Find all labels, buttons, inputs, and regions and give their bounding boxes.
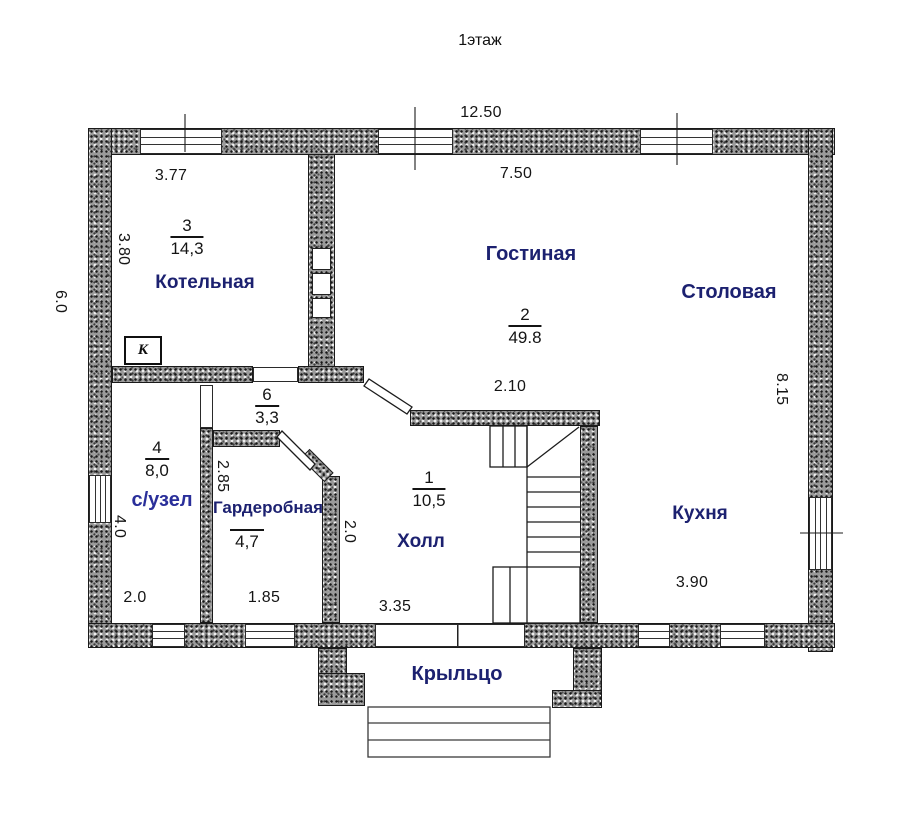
room-area: 8,0	[145, 461, 169, 480]
window-dining-top	[640, 129, 713, 154]
window-bathroom-left	[89, 475, 111, 523]
dim-right-side: 8.15	[772, 373, 790, 405]
door-boiler	[253, 367, 298, 382]
dim-wardrobe-width: 1.85	[248, 589, 280, 607]
room-area-corridor: 6 3,3	[255, 385, 279, 427]
dim-bathroom-depth: 4.0	[110, 515, 128, 538]
wall-wardrobe-diagonal	[300, 449, 333, 482]
linework-layer	[0, 0, 900, 816]
wall-wardrobe-hall	[322, 476, 340, 623]
room-number: 1	[412, 468, 445, 487]
room-label-dining: Столовая	[681, 281, 776, 304]
flue-block-2	[312, 273, 331, 295]
room-area: 4,7	[230, 532, 264, 551]
room-area-wardrobe: 4,7	[230, 528, 264, 551]
fraction-bar	[412, 488, 445, 490]
room-label-porch: Крыльцо	[411, 663, 502, 686]
dim-boiler-width: 3.77	[155, 167, 187, 185]
dim-wardrobe-depth: 2.85	[213, 460, 231, 492]
fraction-bar	[145, 458, 169, 460]
wall-boiler-bottom	[112, 366, 253, 383]
floor-plan: 1этаж 12.50 3.77 7.50 3.80 6.0 8.15 2.10…	[0, 0, 900, 816]
dim-living-width: 7.50	[500, 165, 532, 183]
room-label-boiler: Котельная	[155, 272, 254, 294]
boiler-unit-mark: К	[124, 336, 162, 365]
flue-block-3	[312, 298, 331, 318]
dim-top-total: 12.50	[460, 104, 502, 122]
wall-porch-left-lower	[318, 673, 365, 706]
room-area-living: 2 49.8	[508, 305, 541, 347]
wall-boiler-stub	[298, 366, 364, 383]
flue-block-1	[312, 248, 331, 270]
boiler-unit-letter: К	[138, 342, 148, 359]
room-area: 3,3	[255, 408, 279, 427]
dim-boiler-depth: 3.80	[114, 233, 132, 265]
window-bottom-2	[245, 624, 295, 647]
window-bottom-1	[152, 624, 185, 647]
room-label-bathroom: с/узел	[131, 489, 192, 512]
room-label-wardrobe: Гардеробная	[213, 498, 323, 518]
window-living-top	[378, 129, 453, 154]
room-number: 2	[508, 305, 541, 324]
dim-bathroom-width: 2.0	[123, 589, 146, 607]
fraction-bar	[170, 236, 203, 238]
room-area: 10,5	[412, 491, 445, 510]
door-entrance	[375, 624, 525, 647]
room-area: 49.8	[508, 328, 541, 347]
room-area: 14,3	[170, 239, 203, 258]
door-bathroom	[200, 385, 213, 428]
window-boiler-top	[140, 129, 222, 154]
wall-outer-left	[88, 128, 112, 648]
floor-title: 1этаж	[458, 32, 501, 50]
room-area-bathroom: 4 8,0	[145, 438, 169, 480]
room-number: 3	[170, 216, 203, 235]
room-label-living: Гостиная	[486, 243, 576, 266]
fraction-bar	[255, 405, 279, 407]
fraction-bar	[230, 529, 264, 531]
room-label-kitchen: Кухня	[672, 503, 728, 525]
dim-kitchen-width: 3.90	[676, 574, 708, 592]
room-label-hall: Холл	[397, 531, 445, 553]
wall-porch-left-upper	[318, 648, 347, 674]
door-leaf-living	[364, 379, 412, 414]
stair-landing	[493, 567, 580, 623]
window-bottom-3	[638, 624, 670, 647]
dim-left-side: 6.0	[51, 290, 69, 313]
window-bottom-4	[720, 624, 765, 647]
wall-porch-right-upper	[573, 648, 602, 691]
room-number: 4	[145, 438, 169, 457]
fraction-bar	[508, 325, 541, 327]
window-kitchen-right	[809, 497, 832, 570]
wall-porch-right-lower	[552, 690, 602, 708]
wall-wardrobe-top	[213, 430, 280, 447]
porch-steps	[368, 707, 550, 757]
dim-hall-width: 3.35	[379, 598, 411, 616]
stair-diagonal	[527, 427, 579, 467]
dim-hall-passage: 2.0	[340, 520, 358, 543]
room-number: 6	[255, 385, 279, 404]
room-area-hall: 1 10,5	[412, 468, 445, 510]
wall-bathroom-right	[200, 428, 213, 623]
room-area-boiler: 3 14,3	[170, 216, 203, 258]
wall-outer-right	[808, 128, 833, 652]
stair-winder-box	[490, 426, 527, 467]
wall-stairwell-right	[580, 426, 598, 623]
wall-hall-top	[410, 410, 600, 426]
dim-stair-opening: 2.10	[494, 378, 526, 396]
